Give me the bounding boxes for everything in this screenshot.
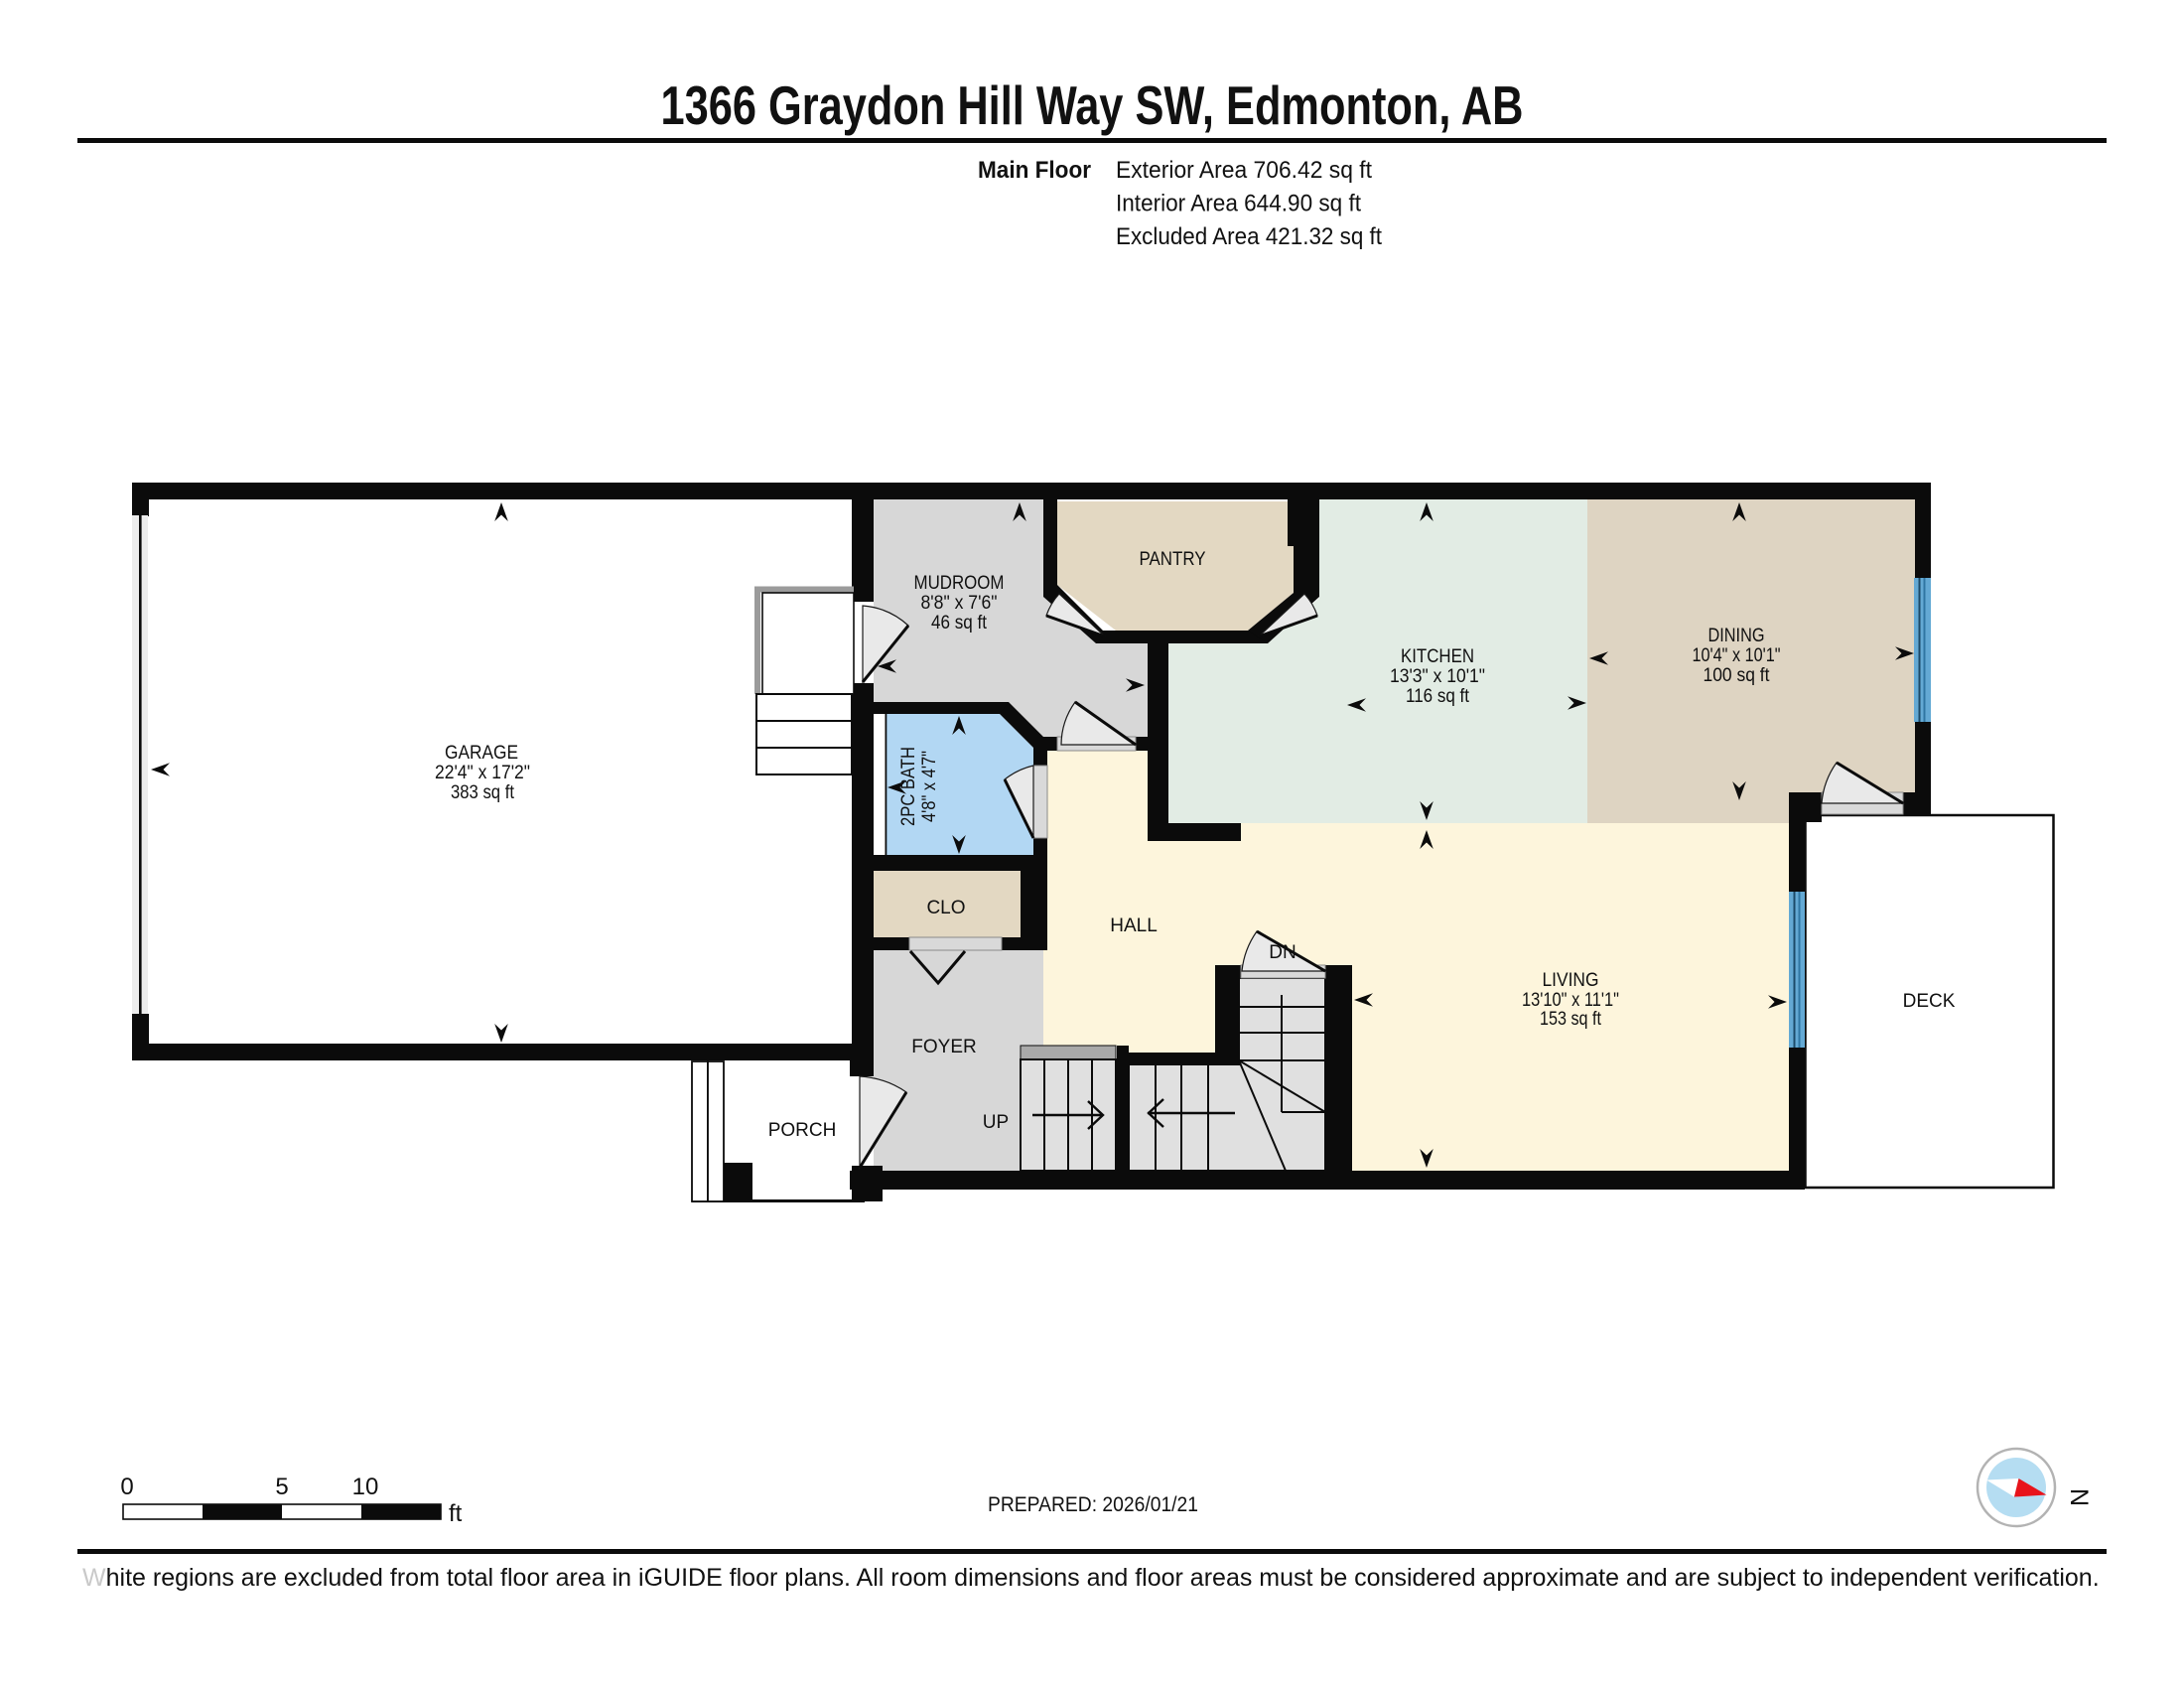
svg-text:Main Floor: Main Floor xyxy=(978,157,1091,184)
svg-text:8'8" x 7'6": 8'8" x 7'6" xyxy=(921,593,998,614)
svg-text:KITCHEN: KITCHEN xyxy=(1401,646,1474,667)
svg-text:PREPARED: 2026/01/21: PREPARED: 2026/01/21 xyxy=(988,1492,1198,1516)
svg-text:UP: UP xyxy=(983,1112,1009,1133)
svg-text:CLO: CLO xyxy=(926,898,965,918)
svg-text:46 sq ft: 46 sq ft xyxy=(931,613,988,633)
svg-text:Excluded Area 421.32 sq ft: Excluded Area 421.32 sq ft xyxy=(1116,223,1382,250)
svg-text:DECK: DECK xyxy=(1903,991,1956,1012)
svg-text:GARAGE: GARAGE xyxy=(445,743,518,764)
svg-text:PORCH: PORCH xyxy=(768,1120,837,1141)
svg-text:Exterior Area 706.42 sq ft: Exterior Area 706.42 sq ft xyxy=(1116,157,1372,184)
svg-text:2PC BATH: 2PC BATH xyxy=(898,747,919,826)
svg-text:DINING: DINING xyxy=(1708,626,1765,646)
svg-text:N: N xyxy=(2065,1488,2093,1506)
svg-text:13'10" x 11'1": 13'10" x 11'1" xyxy=(1522,990,1619,1011)
svg-text:1366 Graydon Hill Way SW, Edmo: 1366 Graydon Hill Way SW, Edmonton, AB xyxy=(661,74,1524,136)
svg-text:LIVING: LIVING xyxy=(1543,970,1599,991)
svg-text:5: 5 xyxy=(275,1474,288,1500)
svg-text:13'3" x 10'1": 13'3" x 10'1" xyxy=(1390,666,1485,687)
svg-text:4'8" x 4'7": 4'8" x 4'7" xyxy=(919,751,940,822)
svg-text:PANTRY: PANTRY xyxy=(1140,549,1206,570)
svg-text:153 sq ft: 153 sq ft xyxy=(1540,1009,1602,1030)
svg-text:10'4" x 10'1": 10'4" x 10'1" xyxy=(1693,645,1781,666)
svg-text:100 sq ft: 100 sq ft xyxy=(1704,665,1771,686)
svg-text:HALL: HALL xyxy=(1110,915,1158,936)
svg-text:Interior Area 644.90 sq ft: Interior Area 644.90 sq ft xyxy=(1116,191,1361,217)
svg-text:MUDROOM: MUDROOM xyxy=(914,573,1005,594)
svg-text:383 sq ft: 383 sq ft xyxy=(451,782,515,803)
svg-text:116 sq ft: 116 sq ft xyxy=(1406,686,1470,707)
svg-text:DN: DN xyxy=(1269,942,1296,963)
svg-text:FOYER: FOYER xyxy=(911,1037,976,1057)
svg-text:White regions are excluded fro: White regions are excluded from total fl… xyxy=(82,1564,2100,1592)
svg-text:0: 0 xyxy=(120,1474,133,1500)
svg-text:22'4" x 17'2": 22'4" x 17'2" xyxy=(435,763,530,783)
svg-text:10: 10 xyxy=(352,1474,379,1500)
svg-text:ft: ft xyxy=(449,1500,463,1527)
